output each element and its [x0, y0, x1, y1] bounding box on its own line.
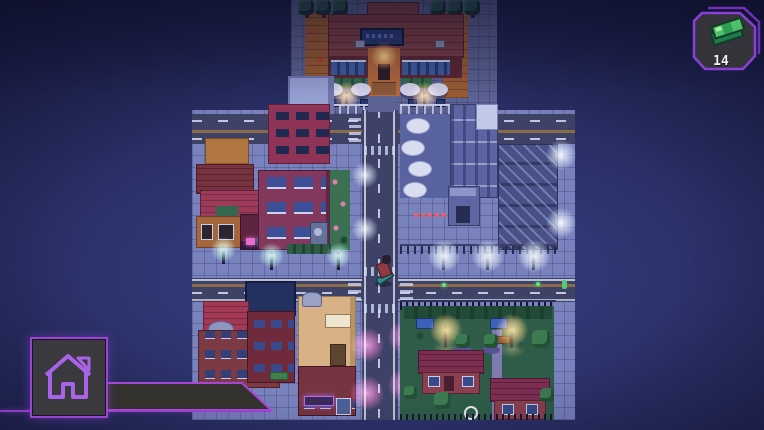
mansion-windows	[331, 60, 366, 75]
park-fence	[400, 414, 554, 420]
tree	[332, 0, 348, 15]
patio-table	[351, 83, 371, 96]
park-tree	[434, 392, 451, 409]
crosswalk	[364, 146, 396, 155]
street-lamp	[222, 246, 225, 264]
game-viewport[interactable]	[192, 0, 575, 420]
mansion-door	[378, 64, 390, 80]
patio-table	[428, 83, 448, 96]
warning-lights	[414, 213, 418, 217]
glass-door	[336, 398, 351, 415]
scaffold-building	[498, 144, 558, 250]
tower-building	[268, 104, 330, 164]
street-lamp	[486, 252, 489, 270]
home-button[interactable]	[30, 337, 108, 418]
mansion-sign	[360, 28, 404, 46]
crosswalk	[364, 304, 396, 313]
patio-umbrella	[403, 182, 427, 198]
player-head	[382, 255, 391, 264]
rooftop-tank	[302, 292, 322, 307]
building-door	[330, 344, 346, 366]
crane-cab	[476, 104, 498, 130]
kiosk-opening	[456, 206, 470, 223]
house-window	[428, 376, 440, 387]
patio-umbrella	[401, 140, 425, 156]
crosswalk	[400, 280, 413, 300]
store-neon-sign	[304, 396, 334, 406]
hud-status-bar	[100, 382, 274, 412]
tree	[430, 0, 446, 15]
planter-box	[270, 372, 288, 380]
plaza-walkway	[368, 96, 394, 112]
tree	[298, 0, 314, 15]
patio-umbrella	[406, 118, 430, 134]
mansion-windows	[402, 60, 450, 75]
patio-umbrella	[408, 161, 432, 177]
mall-lawn	[330, 170, 350, 250]
shop-window	[218, 224, 234, 240]
house-door	[444, 376, 454, 391]
clock-face	[314, 228, 322, 236]
street-lamp	[270, 252, 273, 270]
kiosk-sign	[450, 188, 476, 196]
traffic-light	[536, 282, 540, 286]
traffic-light	[442, 283, 446, 287]
park-bench	[416, 318, 434, 329]
patio-table	[400, 83, 420, 96]
park-tree	[540, 388, 554, 402]
house-window	[462, 376, 474, 387]
street-lamp	[532, 252, 535, 270]
building-sign-band	[325, 314, 351, 328]
tree	[447, 0, 463, 15]
street-lamp	[337, 252, 340, 270]
vent-box	[355, 40, 365, 48]
home-icon	[40, 347, 96, 403]
entrance-steps	[372, 82, 396, 95]
vent-box	[435, 40, 445, 48]
shop-window	[201, 224, 213, 240]
park-tree	[484, 334, 498, 348]
park-tree	[532, 330, 550, 348]
park-bench	[490, 318, 508, 329]
park-lamp	[444, 326, 447, 348]
road-edge-line	[364, 110, 366, 420]
player-character	[374, 254, 394, 290]
money-badge: 14	[688, 4, 764, 74]
street-lamp	[442, 252, 445, 270]
money-count: 14	[688, 54, 754, 69]
status-bar-shape	[101, 383, 271, 410]
npc	[562, 280, 567, 289]
tree	[315, 0, 331, 15]
park-house-left-roof	[418, 350, 484, 374]
crosswalk	[349, 116, 361, 142]
tree	[464, 0, 480, 15]
neon-sign	[246, 238, 255, 245]
park-tree	[404, 386, 417, 399]
park-lamp	[510, 326, 513, 348]
hedge	[287, 244, 331, 254]
park-tree	[456, 334, 470, 348]
